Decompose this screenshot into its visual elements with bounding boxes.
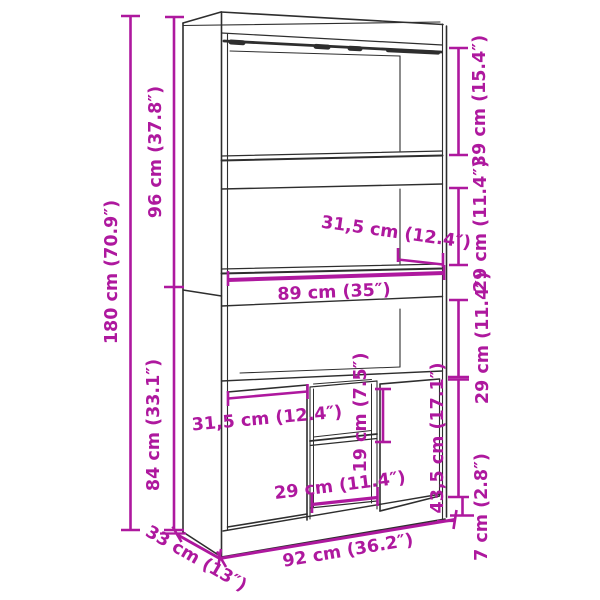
left-door-bottom-edge bbox=[228, 514, 308, 527]
dim-middle-compartment-line bbox=[448, 300, 469, 377]
label-middle-compartment-height: 29 cm (11.4″) bbox=[473, 272, 493, 404]
label-upper-depth: 31,5 cm (12.4″) bbox=[320, 213, 472, 254]
dim-door-width-line bbox=[228, 384, 308, 406]
rail-tab-1 bbox=[231, 42, 243, 43]
cabinet-top-left-slant bbox=[183, 12, 221, 23]
upper-shelf-front-top bbox=[222, 156, 443, 161]
dimension-labels: 180 cm (70.9″) 96 cm (37.8″) 84 cm (33.1… bbox=[102, 35, 493, 596]
dim-total-height-line bbox=[121, 16, 140, 530]
label-niche-shelf-clearance: 19 cm (7.5″) bbox=[351, 353, 371, 473]
dim-upper-compartment-line bbox=[449, 188, 468, 265]
dim-door-height-line bbox=[448, 380, 469, 498]
label-total-height: 180 cm (70.9″) bbox=[102, 200, 122, 344]
upper-ceiling-back-edge bbox=[230, 51, 400, 56]
side-panel-seam bbox=[183, 290, 222, 296]
left-door-top-edge bbox=[228, 385, 308, 392]
label-door-height: 43,5 cm (17.1″) bbox=[428, 363, 448, 514]
label-plinth-height: 7 cm (2.8″) bbox=[472, 453, 492, 561]
upper-shelf-front-bottom bbox=[222, 184, 443, 189]
dim-top-compartment-line bbox=[449, 48, 468, 155]
lower-floor-back-edge bbox=[240, 367, 400, 373]
rail-tab-3 bbox=[350, 48, 360, 49]
dimension-diagram: 180 cm (70.9″) 96 cm (37.8″) 84 cm (33.1… bbox=[0, 0, 600, 600]
label-worktop-width: 89 cm (35″) bbox=[277, 280, 391, 305]
label-upper-section-height: 96 cm (37.8″) bbox=[146, 86, 166, 218]
label-door-width: 31,5 cm (12.4″) bbox=[191, 402, 343, 435]
rail-tab-2 bbox=[316, 46, 328, 47]
rail-tab-4 bbox=[388, 50, 438, 52]
cabinet-dimension-drawing: 180 cm (70.9″) 96 cm (37.8″) 84 cm (33.1… bbox=[0, 0, 600, 600]
label-lower-section-height: 84 cm (33.1″) bbox=[144, 359, 164, 491]
label-top-compartment-height: 39 cm (15.4″) bbox=[470, 35, 490, 167]
label-niche-width: 29 cm (11.4″) bbox=[273, 468, 407, 504]
label-depth: 33 cm (13″) bbox=[142, 522, 250, 596]
